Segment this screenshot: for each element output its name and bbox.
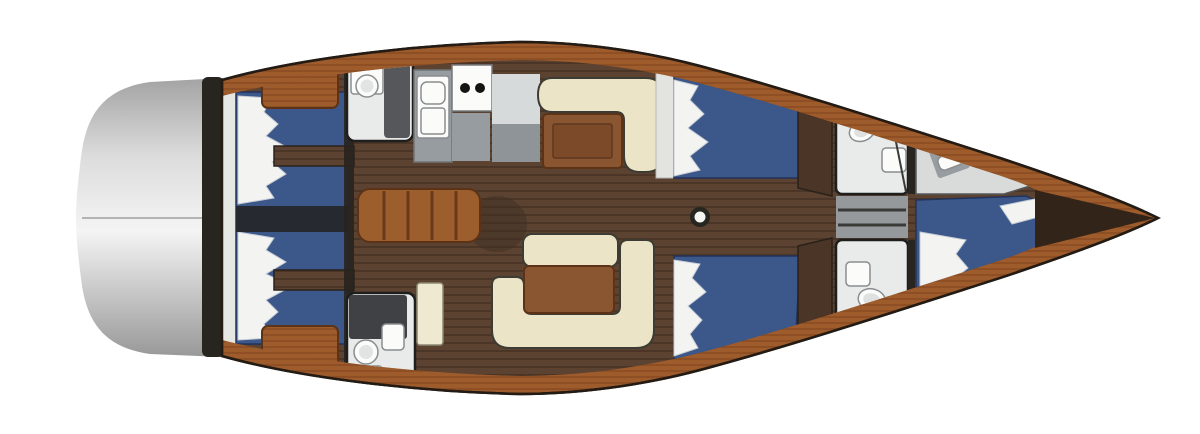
stern-bulkhead — [202, 77, 224, 357]
galley-sink-2 — [421, 108, 445, 134]
aft-shelf-port — [274, 146, 354, 166]
starboard-cabinet — [417, 283, 443, 345]
boat-plan-svg — [0, 0, 1200, 434]
yacht-floorplan — [0, 0, 1200, 434]
aft-berth-centerline-divider — [236, 206, 348, 232]
companionway-steps-icon — [358, 189, 480, 242]
fwd-head-starboard-sink — [846, 262, 870, 286]
stove-burner-icon — [460, 83, 470, 93]
fwd-passage — [836, 196, 908, 238]
aft-head-starboard-basin — [382, 324, 404, 350]
toilet-bowl — [361, 80, 374, 93]
saloon-table — [524, 266, 614, 313]
mast-icon — [695, 212, 706, 223]
galley — [414, 65, 540, 162]
saloon-bench — [523, 234, 618, 267]
galley-fridge — [452, 113, 490, 161]
fwd-head-port-sink — [882, 148, 906, 172]
stove-burner-icon-2 — [475, 83, 485, 93]
galley-stove — [452, 65, 492, 111]
aft-shelf-starboard — [274, 270, 354, 290]
aft-head-port-counter — [384, 60, 410, 138]
port-table-panel — [553, 124, 612, 158]
toilet-bowl-2 — [359, 345, 373, 359]
galley-locker — [492, 124, 540, 162]
sink-icon — [421, 82, 445, 104]
galley-worktop — [492, 74, 540, 124]
salon-locker — [656, 70, 674, 178]
